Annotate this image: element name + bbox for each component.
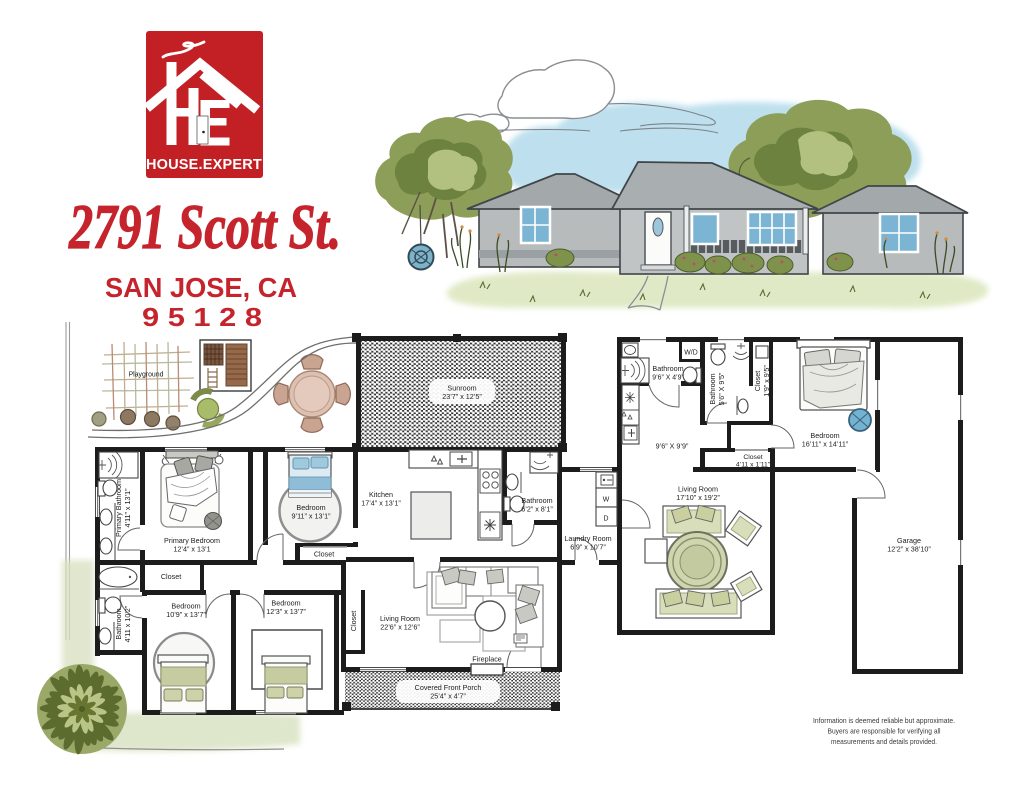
svg-text:12’2” x 38’10”: 12’2” x 38’10”: [887, 545, 931, 554]
svg-text:9 5 1 2 8: 9 5 1 2 8: [142, 302, 262, 332]
svg-text:4’11 x 10’2”: 4’11 x 10’2”: [123, 605, 132, 642]
svg-text:5’6” X 9’5”: 5’6” X 9’5”: [717, 372, 726, 405]
svg-text:W/D: W/D: [684, 350, 697, 357]
svg-text:16’11” x 14’11”: 16’11” x 14’11”: [802, 440, 849, 449]
svg-text:1’9” x 9’5”: 1’9” x 9’5”: [762, 365, 771, 397]
svg-text:6’2” x 8’1”: 6’2” x 8’1”: [521, 505, 553, 514]
svg-text:Information is deemed reliable: Information is deemed reliable but appro…: [813, 716, 955, 725]
svg-text:Bathroom: Bathroom: [708, 373, 717, 404]
svg-text:Fireplace: Fireplace: [472, 655, 502, 664]
svg-text:Closet: Closet: [314, 550, 334, 559]
svg-text:Closet: Closet: [161, 572, 181, 581]
svg-text:Bathroom: Bathroom: [114, 608, 123, 639]
svg-text:22’6” x 12’6”: 22’6” x 12’6”: [380, 623, 420, 632]
svg-text:Buyers are responsible for ver: Buyers are responsible for verifying all: [828, 727, 941, 736]
svg-text:10’9” x 13’7”: 10’9” x 13’7”: [166, 610, 206, 619]
svg-text:W: W: [603, 497, 610, 504]
svg-text:Primary Bathroom: Primary Bathroom: [114, 479, 123, 537]
svg-text:12’4” x 13’1: 12’4” x 13’1: [173, 545, 210, 554]
svg-text:6’9” x 10’7”: 6’9” x 10’7”: [570, 543, 606, 552]
svg-text:SAN JOSE, CA: SAN JOSE, CA: [105, 272, 297, 303]
svg-text:Closet: Closet: [753, 371, 762, 391]
svg-text:Closet: Closet: [349, 611, 358, 631]
svg-text:D: D: [604, 516, 609, 523]
svg-text:2791 Scott St.: 2791 Scott St.: [68, 191, 341, 262]
svg-text:9’11” x 13’1”: 9’11” x 13’1”: [291, 512, 331, 521]
svg-text:12’3” x 13’7”: 12’3” x 13’7”: [266, 607, 306, 616]
svg-text:Playground: Playground: [129, 372, 164, 379]
svg-text:23’7” x 12’5”: 23’7” x 12’5”: [442, 392, 482, 401]
svg-text:measurements and details provi: measurements and details provided.: [831, 737, 937, 746]
svg-text:17’4” x 13’1”: 17’4” x 13’1”: [361, 499, 401, 508]
svg-text:4’11 x 1’11”: 4’11 x 1’11”: [736, 462, 771, 469]
svg-text:Closet: Closet: [743, 454, 762, 461]
svg-text:9’6” X 9’9”: 9’6” X 9’9”: [656, 442, 689, 451]
svg-text:HOUSE.EXPERT: HOUSE.EXPERT: [146, 157, 262, 173]
svg-text:4’11” x 13’1”: 4’11” x 13’1”: [123, 488, 132, 528]
svg-text:Bathroom: Bathroom: [652, 364, 683, 373]
svg-text:25’4” x 4’7”: 25’4” x 4’7”: [430, 692, 466, 701]
svg-text:9’6” X 4’9”: 9’6” X 4’9”: [652, 375, 684, 382]
svg-text:17’10” x 19’2”: 17’10” x 19’2”: [676, 493, 720, 502]
